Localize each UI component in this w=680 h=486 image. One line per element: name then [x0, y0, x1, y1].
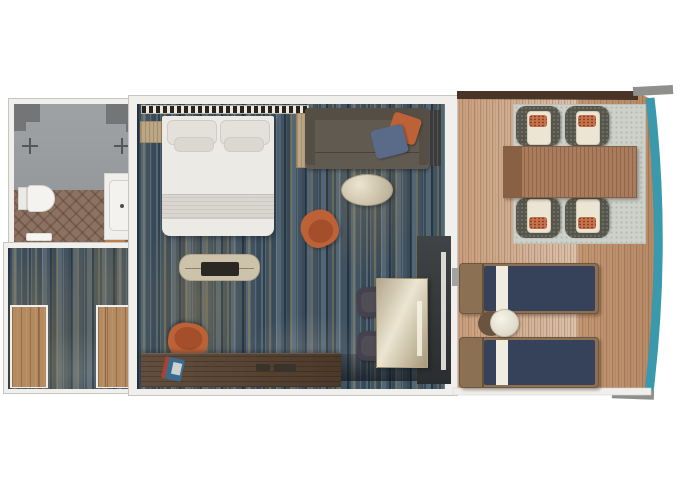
desk-accessory [256, 364, 270, 371]
tv [201, 262, 239, 276]
tv-bench [179, 254, 260, 281]
sun-lounger [459, 263, 599, 314]
curtain [429, 110, 441, 166]
dining-table [503, 146, 637, 198]
shower-shelf-left-step [14, 104, 26, 131]
partition-rail-top [457, 91, 638, 100]
blanket-band [162, 194, 274, 219]
shower-valve-icon [22, 138, 38, 154]
throw-pillow-blue [370, 123, 409, 159]
chair-pillow [578, 217, 596, 229]
desk [141, 353, 341, 387]
oval-coffee-table [341, 174, 393, 206]
wicker-chair [516, 198, 560, 238]
wardrobe-left [10, 305, 48, 388]
sofa [305, 108, 429, 169]
entry-hall [3, 242, 143, 394]
wicker-chair [565, 106, 609, 146]
lounger-stripe [496, 266, 508, 311]
nightstand [140, 121, 162, 143]
chair-pillow [578, 115, 596, 127]
table-reflection [417, 301, 422, 356]
deck-trim-top-right [633, 85, 673, 96]
pillow [224, 137, 264, 152]
headboard-panel [141, 105, 309, 114]
desk-accessory [274, 364, 296, 372]
chair-cushion [527, 111, 551, 145]
wicker-chair [516, 106, 560, 146]
sheer-curtain [441, 252, 446, 370]
floor-plan [0, 0, 680, 486]
lounger-frame-line [482, 338, 484, 387]
toilet-bowl [27, 185, 55, 212]
chair-pillow [529, 115, 547, 127]
chair-cushion [576, 111, 600, 145]
balcony-bottom-wall [453, 388, 651, 395]
chair-pillow [529, 217, 547, 229]
bathroom [8, 98, 144, 248]
door-knob-icon [120, 204, 124, 208]
toilet-tank [18, 187, 27, 210]
table-end-cap [504, 147, 522, 197]
sofa-arm-left [305, 108, 315, 165]
magazine [161, 356, 185, 382]
sofa-arm-right [419, 108, 429, 165]
lounger-stripe [496, 340, 508, 385]
glossy-vanity-table [376, 278, 428, 368]
bedroom [128, 95, 458, 396]
toilet [18, 185, 56, 212]
chair-cushion [527, 199, 551, 233]
bath-mat [26, 233, 52, 241]
round-side-table [490, 309, 519, 337]
double-bed [162, 116, 274, 236]
wicker-chair [565, 198, 609, 238]
sun-lounger [459, 337, 599, 388]
lounger-frame-line [482, 264, 484, 313]
chair-cushion [576, 199, 600, 233]
pillow [174, 137, 214, 152]
